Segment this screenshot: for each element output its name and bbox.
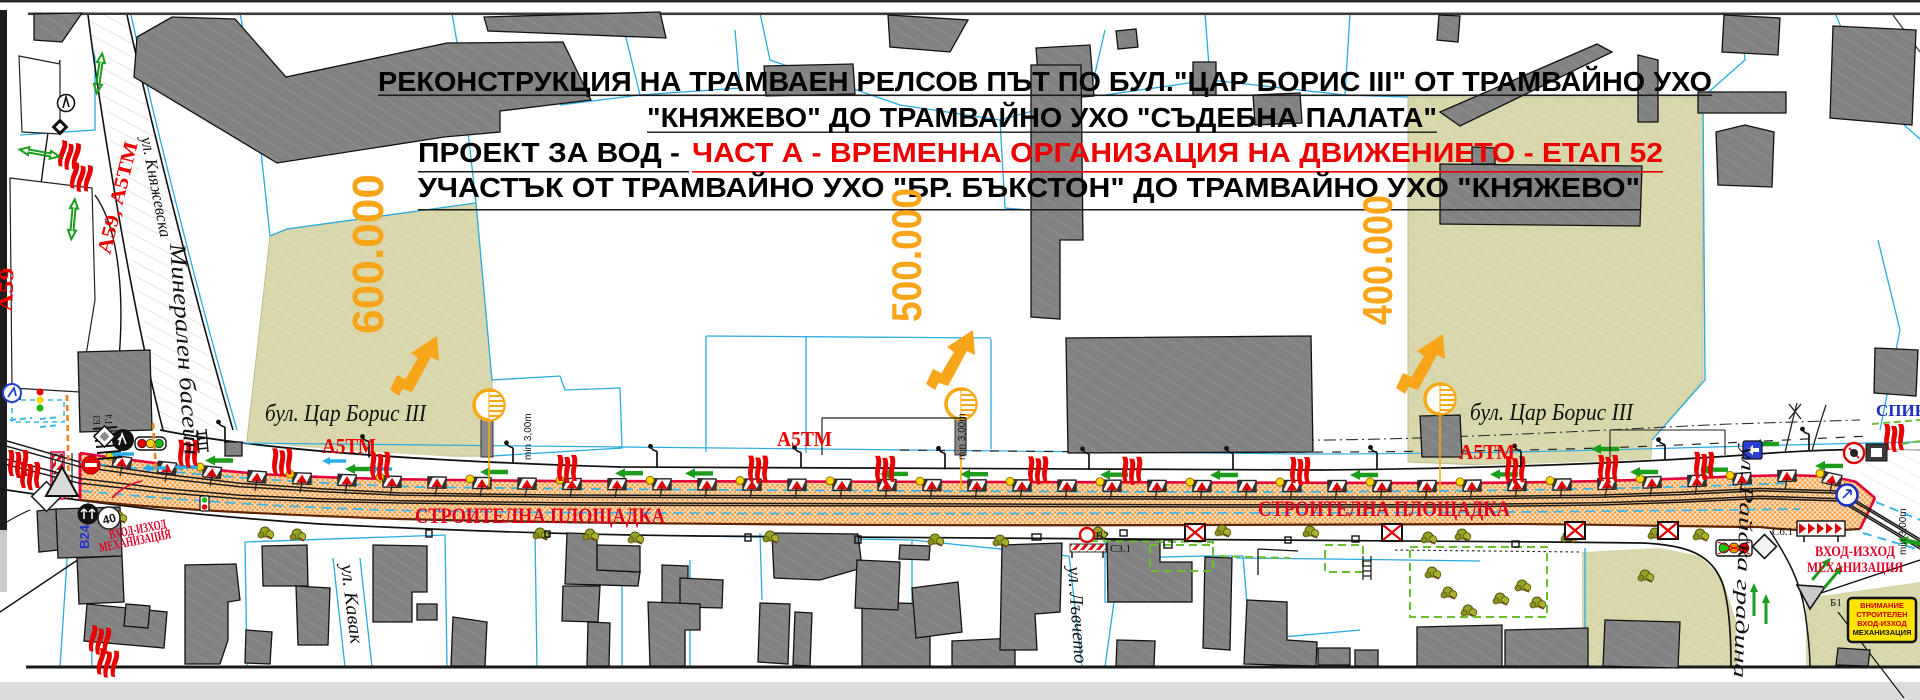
svg-text:В2: В2: [1096, 530, 1109, 542]
svg-text:Б3: Б3: [92, 415, 102, 425]
svg-text:СТРОИТЕЛНА ПЛОЩАДКА: СТРОИТЕЛНА ПЛОЩАДКА: [415, 503, 665, 528]
svg-text:Г4: Г4: [104, 414, 114, 424]
svg-text:ВХОД-ИЗХОД: ВХОД-ИЗХОД: [1857, 619, 1907, 628]
svg-text:С6.1: С6.1: [1772, 526, 1793, 538]
svg-text:УЧАСТЪК ОТ ТРАМВАЙНО УХО "БР.: УЧАСТЪК ОТ ТРАМВАЙНО УХО "БР. БЪКСТОН" Д…: [418, 171, 1640, 203]
svg-text:РЕКОНСТРУКЦИЯ НА ТРАМВАЕН РЕЛС: РЕКОНСТРУКЦИЯ НА ТРАМВАЕН РЕЛСОВ ПЪТ ПО …: [378, 65, 1712, 97]
svg-text:ВХОД-ИЗХОД: ВХОД-ИЗХОД: [1815, 544, 1896, 560]
svg-text:СТРОИТЕЛНА ПЛОЩАДКА: СТРОИТЕЛНА ПЛОЩАДКА: [1258, 496, 1510, 521]
svg-text:бул. Цар Борис III: бул. Цар Борис III: [265, 401, 427, 427]
svg-text:600.000: 600.000: [344, 174, 393, 334]
svg-text:бул. Цар Борис III: бул. Цар Борис III: [1470, 400, 1634, 426]
svg-text:min 3,00m: min 3,00m: [523, 413, 534, 460]
svg-text:МЕХАНИЗАЦИЯ: МЕХАНИЗАЦИЯ: [1853, 628, 1912, 637]
svg-text:В24: В24: [78, 525, 92, 549]
svg-text:А5ТМ: А5ТМ: [322, 434, 376, 458]
svg-text:min 3,00m: min 3,00m: [1898, 508, 1909, 555]
svg-text:С3.1: С3.1: [1110, 543, 1131, 555]
svg-text:ЧАСТ А - ВРЕМЕННА ОРГАНИЗАЦИЯ: ЧАСТ А - ВРЕМЕННА ОРГАНИЗАЦИЯ НА ДВИЖЕНИ…: [692, 137, 1663, 168]
svg-text:СТРОИТЕЛЕН: СТРОИТЕЛЕН: [1856, 610, 1907, 619]
svg-text:Б1: Б1: [1830, 597, 1842, 609]
svg-text:min 3,00m: min 3,00m: [957, 413, 968, 460]
svg-text:А5ТМ: А5ТМ: [1459, 440, 1515, 464]
svg-text:СПИРКА: СПИРКА: [1876, 401, 1920, 420]
svg-text:А5ТМ: А5ТМ: [777, 427, 832, 451]
svg-text:ПРОЕКТ ЗА ВОД -: ПРОЕКТ ЗА ВОД -: [418, 137, 680, 168]
svg-text:400.000: 400.000: [1354, 195, 1401, 325]
svg-text:ВНИМАНИЕ: ВНИМАНИЕ: [1860, 601, 1904, 610]
svg-text:500.000: 500.000: [883, 188, 930, 322]
svg-text:МЕХАНИЗАЦИЯ: МЕХАНИЗАЦИЯ: [1807, 560, 1903, 576]
svg-text:А59: А59: [0, 267, 19, 312]
svg-text:"КНЯЖЕВО" ДО ТРАМВАЙНО УХО "СЪ: "КНЯЖЕВО" ДО ТРАМВАЙНО УХО "СЪДЕБНА ПАЛА…: [647, 101, 1437, 133]
